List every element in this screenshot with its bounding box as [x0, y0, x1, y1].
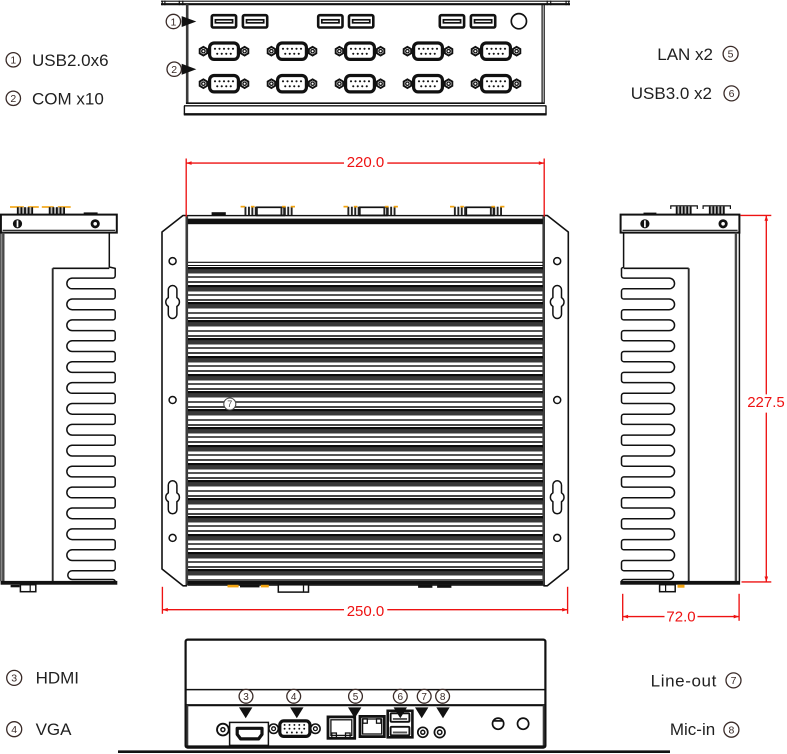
svg-text:8: 8 [440, 692, 446, 703]
svg-text:3: 3 [11, 673, 17, 685]
svg-text:1: 1 [10, 55, 16, 67]
svg-text:7: 7 [227, 399, 232, 409]
svg-text:7: 7 [421, 692, 427, 703]
svg-text:4: 4 [291, 692, 297, 703]
svg-text:Line-out: Line-out [651, 671, 717, 690]
svg-text:8: 8 [728, 724, 734, 736]
svg-text:72.0: 72.0 [666, 609, 695, 626]
svg-text:3: 3 [243, 692, 249, 703]
svg-text:USB3.0 x2: USB3.0 x2 [631, 84, 712, 103]
svg-text:4: 4 [11, 724, 17, 736]
svg-text:HDMI: HDMI [36, 669, 79, 688]
svg-text:2: 2 [171, 64, 177, 76]
svg-text:VGA: VGA [36, 720, 73, 739]
svg-text:USB2.0x6: USB2.0x6 [32, 51, 109, 70]
svg-text:5: 5 [728, 49, 734, 61]
svg-text:6: 6 [398, 692, 404, 703]
svg-text:5: 5 [353, 692, 359, 703]
svg-text:250.0: 250.0 [347, 603, 385, 620]
svg-text:COM x10: COM x10 [32, 89, 104, 108]
svg-text:1: 1 [170, 16, 176, 28]
svg-text:227.5: 227.5 [747, 394, 785, 411]
svg-text:2: 2 [10, 93, 16, 105]
svg-text:Mic-in: Mic-in [670, 720, 715, 739]
svg-text:220.0: 220.0 [347, 154, 385, 171]
svg-text:7: 7 [731, 675, 737, 687]
svg-text:LAN x2: LAN x2 [657, 45, 713, 64]
svg-text:6: 6 [729, 88, 735, 100]
